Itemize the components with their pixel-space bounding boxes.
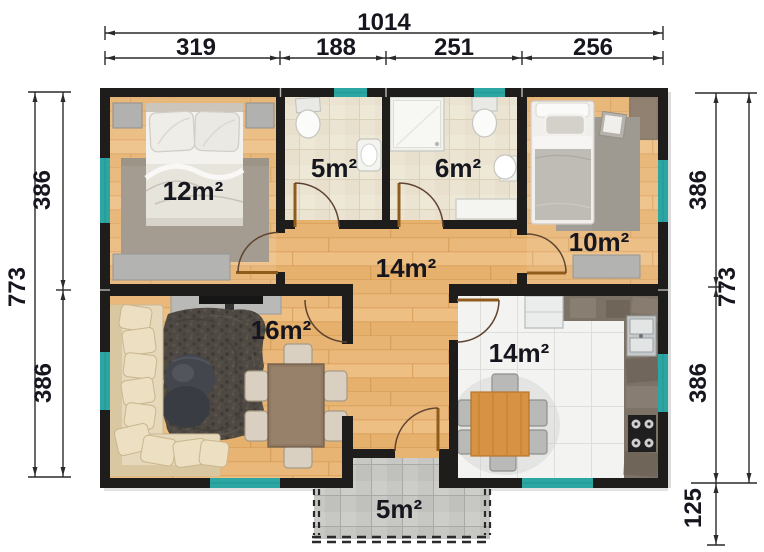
svg-text:773: 773 xyxy=(714,267,741,307)
svg-text:5m²: 5m² xyxy=(311,153,358,183)
svg-text:14m²: 14m² xyxy=(376,253,437,283)
svg-text:256: 256 xyxy=(573,34,613,61)
svg-text:10m²: 10m² xyxy=(569,227,630,257)
svg-text:5m²: 5m² xyxy=(376,494,423,524)
svg-text:386: 386 xyxy=(685,170,712,210)
svg-text:251: 251 xyxy=(434,34,474,61)
svg-text:125: 125 xyxy=(680,488,707,528)
svg-text:12m²: 12m² xyxy=(163,176,224,206)
svg-text:14m²: 14m² xyxy=(489,338,550,368)
svg-text:386: 386 xyxy=(29,170,56,210)
svg-text:386: 386 xyxy=(30,363,57,403)
svg-text:188: 188 xyxy=(316,34,356,61)
svg-text:773: 773 xyxy=(4,267,31,307)
svg-text:16m²: 16m² xyxy=(251,315,312,345)
svg-text:319: 319 xyxy=(176,34,216,61)
svg-text:1014: 1014 xyxy=(357,9,411,36)
svg-text:6m²: 6m² xyxy=(435,153,482,183)
svg-text:386: 386 xyxy=(685,363,712,403)
